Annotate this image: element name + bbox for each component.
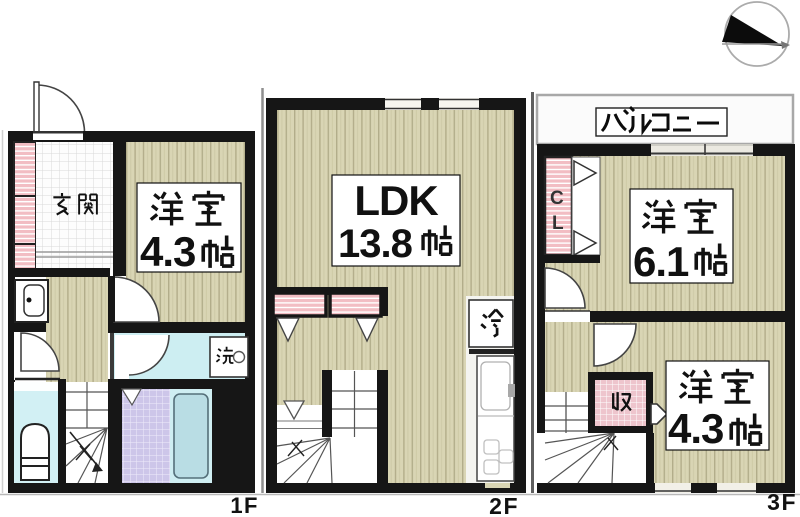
svg-text:6.1: 6.1 [633, 238, 689, 285]
svg-text:13.8: 13.8 [338, 222, 413, 266]
svg-text:2F: 2F [489, 493, 519, 517]
svg-text:L: L [552, 213, 564, 234]
svg-text:4.3: 4.3 [140, 228, 195, 275]
svg-text:1F: 1F [230, 493, 259, 517]
svg-text:LDK: LDK [354, 177, 438, 224]
svg-text:C: C [550, 188, 564, 209]
svg-text:3F: 3F [767, 489, 797, 515]
svg-text:4.3: 4.3 [668, 405, 723, 452]
